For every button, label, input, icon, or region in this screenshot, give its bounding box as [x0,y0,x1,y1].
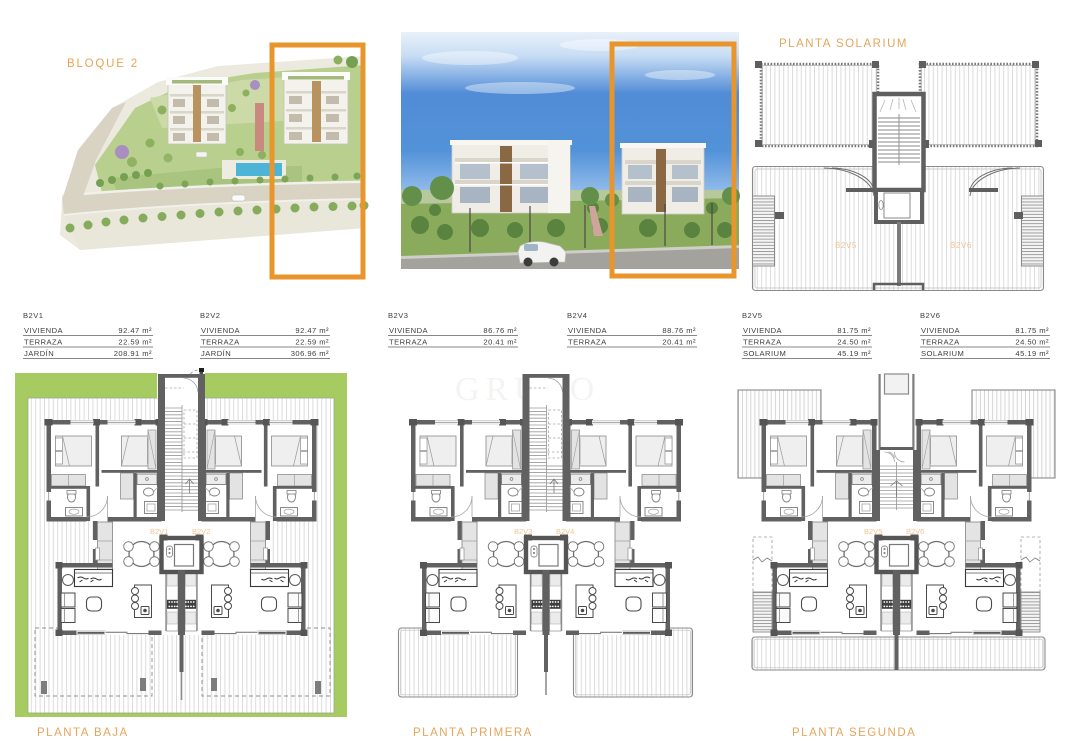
svg-text:B2V5: B2V5 [835,241,857,250]
svg-text:306.96 m²: 306.96 m² [291,349,329,358]
svg-text:B2V6: B2V6 [950,241,972,250]
svg-text:B2V6: B2V6 [906,527,924,536]
svg-text:TERRAZA: TERRAZA [201,338,240,347]
svg-text:VIVIENDA: VIVIENDA [389,326,429,335]
svg-text:B2V6: B2V6 [920,311,940,320]
svg-text:88.76 m²: 88.76 m² [662,326,696,335]
svg-text:20.41 m²: 20.41 m² [662,338,696,347]
svg-text:SOLARIUM: SOLARIUM [743,349,786,358]
svg-text:VIVIENDA: VIVIENDA [201,326,241,335]
svg-text:PLANTA SEGUNDA: PLANTA SEGUNDA [792,727,916,739]
svg-text:24.50 m²: 24.50 m² [837,338,871,347]
svg-text:B2V5: B2V5 [864,527,882,536]
svg-text:JARDÍN: JARDÍN [201,349,231,358]
svg-text:TERRAZA: TERRAZA [743,338,782,347]
svg-text:VIVIENDA: VIVIENDA [743,326,783,335]
svg-text:81.75 m²: 81.75 m² [1015,326,1049,335]
svg-text:B2V2: B2V2 [192,527,210,536]
svg-text:JARDÍN: JARDÍN [24,349,54,358]
svg-text:B2V5: B2V5 [742,311,762,320]
svg-text:TERRAZA: TERRAZA [568,338,607,347]
svg-text:PLANTA SOLARIUM: PLANTA SOLARIUM [779,38,908,50]
svg-text:22.59 m²: 22.59 m² [295,338,329,347]
svg-text:TERRAZA: TERRAZA [921,338,960,347]
svg-text:B2V2: B2V2 [200,311,220,320]
svg-text:TERRAZA: TERRAZA [24,338,63,347]
svg-text:92.47 m²: 92.47 m² [295,326,329,335]
svg-text:B2V1: B2V1 [23,311,43,320]
svg-text:45.19 m²: 45.19 m² [837,349,871,358]
svg-text:VIVIENDA: VIVIENDA [568,326,608,335]
svg-text:208.91 m²: 208.91 m² [114,349,152,358]
svg-text:92.47 m²: 92.47 m² [118,326,152,335]
svg-text:TERRAZA: TERRAZA [389,338,428,347]
svg-text:VIVIENDA: VIVIENDA [921,326,961,335]
svg-text:VIVIENDA: VIVIENDA [24,326,64,335]
svg-text:24.50 m²: 24.50 m² [1015,338,1049,347]
svg-text:SOLARIUM: SOLARIUM [921,349,964,358]
svg-text:B2V4: B2V4 [556,527,574,536]
svg-text:81.75 m²: 81.75 m² [837,326,871,335]
svg-text:45.19 m²: 45.19 m² [1015,349,1049,358]
svg-text:B2V4: B2V4 [567,311,587,320]
svg-text:B2V1: B2V1 [150,527,168,536]
svg-text:20.41 m²: 20.41 m² [483,338,517,347]
svg-text:B2V3: B2V3 [388,311,408,320]
svg-text:PLANTA PRIMERA: PLANTA PRIMERA [413,727,533,739]
svg-text:B2V3: B2V3 [514,527,532,536]
svg-text:22.59 m²: 22.59 m² [118,338,152,347]
svg-text:BLOQUE 2: BLOQUE 2 [67,58,139,70]
svg-text:PLANTA BAJA: PLANTA BAJA [37,727,129,739]
svg-text:86.76 m²: 86.76 m² [483,326,517,335]
